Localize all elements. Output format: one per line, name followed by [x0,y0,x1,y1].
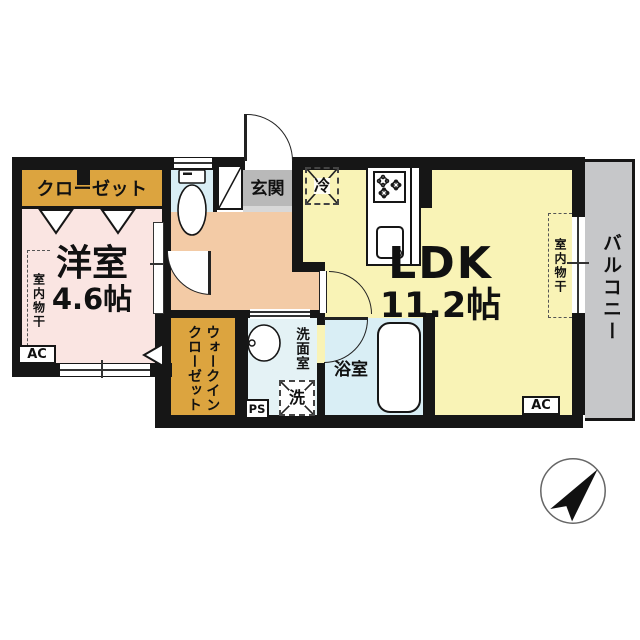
balcony-window-line [577,217,579,313]
closet-label: クローゼット [22,176,162,200]
wall-left [12,157,22,377]
cabinet-diagonal-icon [219,167,241,208]
ac-label-ldk: AC [531,398,551,413]
ldk-name: LDK [333,242,548,286]
ac-box-western-room: AC [18,345,56,364]
toilet-icon [173,168,211,240]
refrigerator-box: 冷 [305,167,339,205]
toilet-door-leaf [208,251,211,294]
stove-icon [373,171,406,203]
western-room-label: 洋室 4.6帖 [22,245,162,316]
wall-ldk-balcony-a [572,157,585,217]
ldk-label: LDK 11.2帖 [333,242,548,326]
wall-wash-bath-b [317,363,325,428]
wall-entrance-right [292,157,303,267]
entrance-door-leaf [244,114,247,161]
closet-folding-door-icon [38,208,138,236]
western-room-name: 洋室 [22,245,162,283]
floorplan: 冷 洗 [0,0,640,640]
west-window-tick [101,360,103,378]
pipe-space-label: PS [249,402,266,416]
bathtub-icon [377,322,421,413]
compass-icon [537,455,609,527]
refrigerator-label: 冷 [314,178,330,194]
balcony-label: バルコニー [598,233,625,343]
washroom-label: 洗面室 [291,327,311,371]
washroom-door-line2 [250,315,310,317]
walk-in-closet-text: ウォークイン クローゼット [185,325,221,412]
entrance-door-arc [247,114,293,161]
wic-opening-triangle-icon [141,342,165,368]
vanity-sink-icon [245,323,283,363]
hall-ldk-door-leaf [319,271,327,313]
indoor-drying-label-ldk: 室内物干 [552,238,569,294]
ac-box-ldk: AC [522,396,560,415]
washer-label: 洗 [289,390,305,406]
pipe-space-box: PS [245,399,269,419]
indoor-drying-ldk: 室内物干 [548,213,572,318]
wall-kitchen-stub [421,157,432,208]
ac-label-western-room: AC [27,347,47,362]
west-window-line [60,369,150,371]
entrance-label: 玄関 [243,167,292,205]
washer-box: 洗 [279,380,315,416]
wall-bath-right [423,313,435,428]
walk-in-closet-label: ウォークイン クローゼット [171,318,235,418]
wall-wic-left [155,313,171,428]
wall-ldk-balcony-b [572,313,585,415]
western-room-size: 4.6帖 [22,283,162,316]
bathroom-label: 浴室 [326,356,376,378]
toilet-window-line [174,162,212,164]
washroom-door-line1 [250,311,310,313]
shoe-cabinet [217,165,243,210]
ldk-size: 11.2帖 [333,286,548,326]
